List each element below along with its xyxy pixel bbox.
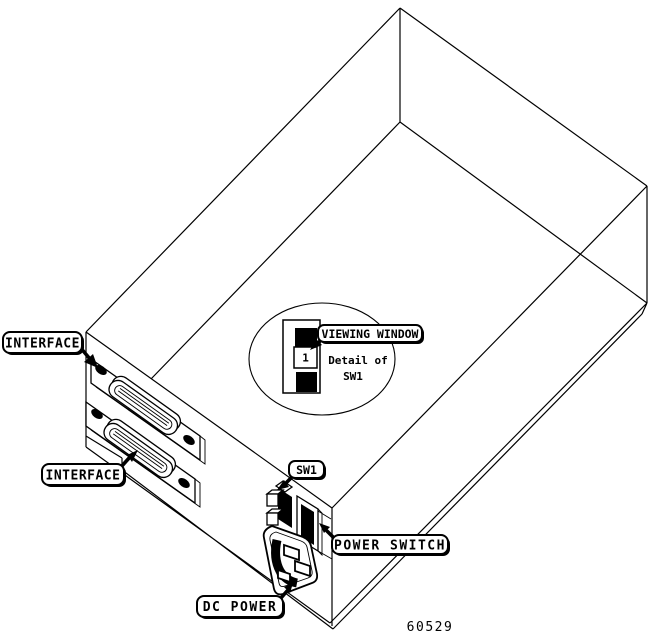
switch-position-digit: 1 <box>302 352 309 365</box>
sw1-detail-block-bottom <box>296 372 317 392</box>
detail-caption-line1: Detail of <box>328 354 388 367</box>
figure-canvas: 1 Detail of SW1 INTERFACE INTERFACE VIEW… <box>0 0 649 640</box>
callout-label: SW1 <box>296 463 317 477</box>
sw1-button <box>267 494 278 506</box>
callout-label: DC POWER <box>203 600 278 615</box>
callout-label: INTERFACE <box>46 469 121 484</box>
sw1-leader-line <box>286 477 292 483</box>
detail-caption-line2: SW1 <box>343 370 363 383</box>
callout-sw1: SW1 <box>289 461 326 480</box>
callout-label: INTERFACE <box>5 337 80 352</box>
callout-viewing-window: VIEWING WINDOW <box>318 325 424 344</box>
callout-dc-power: DC POWER <box>197 596 285 619</box>
callout-power-switch: POWER SWITCH <box>332 535 450 556</box>
callout-label: VIEWING WINDOW <box>322 327 419 341</box>
sw1-body <box>278 488 292 528</box>
detail-balloon: 1 Detail of SW1 <box>249 303 395 415</box>
rear-panel-diagram: 1 Detail of SW1 INTERFACE INTERFACE VIEW… <box>0 0 649 640</box>
callout-interface-bottom: INTERFACE <box>42 464 126 487</box>
callout-label: POWER SWITCH <box>334 539 446 554</box>
figure-number: 60529 <box>407 620 454 635</box>
sw1-button <box>267 513 278 525</box>
callout-interface-top: INTERFACE <box>3 332 84 355</box>
